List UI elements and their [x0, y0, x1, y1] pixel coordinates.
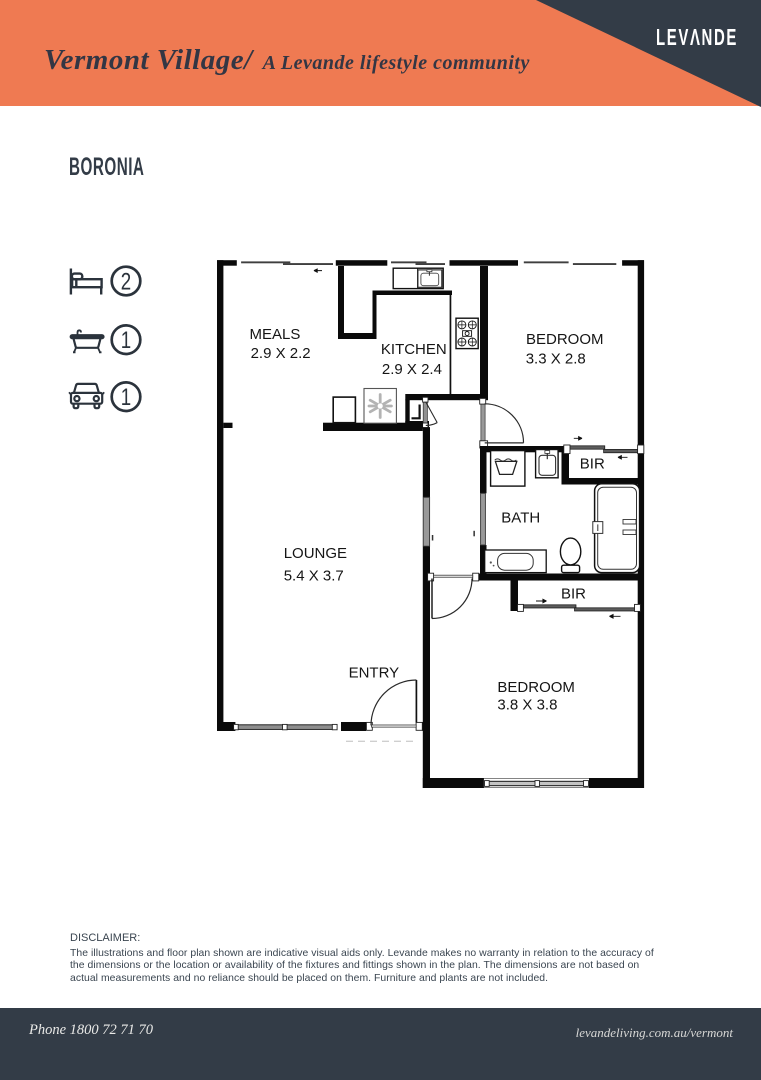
svg-text:ENTRY: ENTRY: [349, 665, 400, 682]
svg-text:2.9 X 2.4: 2.9 X 2.4: [382, 361, 442, 378]
svg-text:BEDROOM: BEDROOM: [497, 679, 575, 696]
svg-text:BIR: BIR: [580, 455, 605, 472]
svg-text:2.9 X 2.2: 2.9 X 2.2: [251, 345, 311, 362]
svg-text:BATH: BATH: [501, 510, 540, 527]
svg-text:BEDROOM: BEDROOM: [526, 331, 604, 348]
svg-text:3.8 X 3.8: 3.8 X 3.8: [497, 696, 557, 713]
svg-text:KITCHEN: KITCHEN: [381, 341, 447, 358]
svg-text:BIR: BIR: [561, 586, 586, 603]
svg-text:5.4 X 3.7: 5.4 X 3.7: [284, 567, 344, 584]
svg-text:3.3 X 2.8: 3.3 X 2.8: [526, 350, 586, 367]
svg-text:LOUNGE: LOUNGE: [284, 545, 347, 562]
svg-text:MEALS: MEALS: [250, 326, 301, 343]
